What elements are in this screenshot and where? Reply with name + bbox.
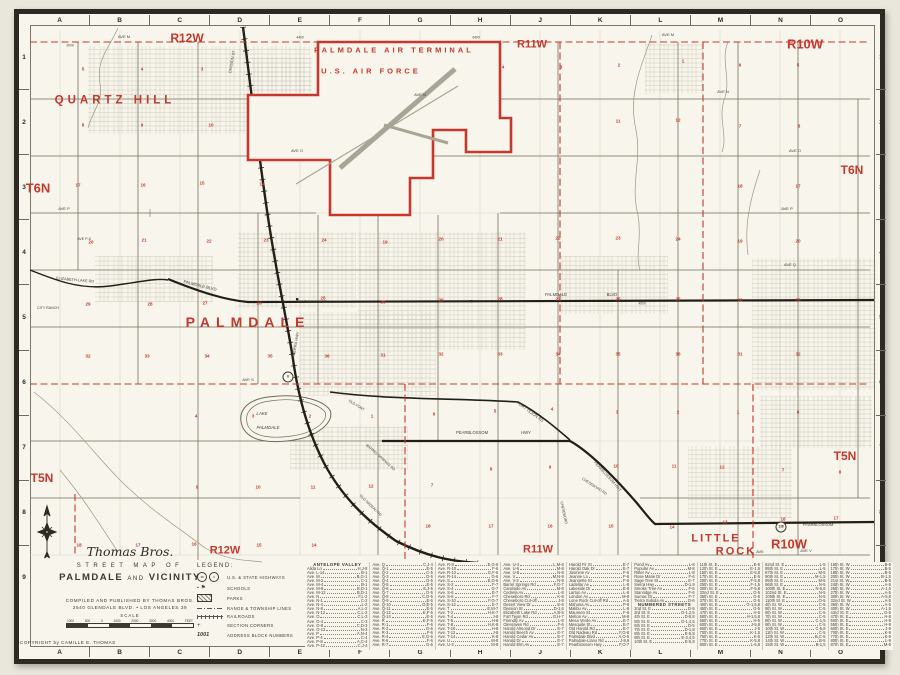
leader-dots [455, 585, 492, 586]
leader-dots [849, 621, 883, 622]
grid-letter: H [450, 15, 510, 25]
school-square-icon: ▪ [197, 586, 199, 591]
grid-ref: M-8 [491, 643, 498, 647]
leader-dots [783, 625, 818, 626]
leader-dots [389, 645, 425, 646]
leader-dots [849, 645, 882, 646]
leader-dots [719, 585, 750, 586]
index-entry: Ave. R-7G-6 [372, 643, 432, 647]
grid-letter: B [89, 15, 149, 25]
leader-dots [851, 609, 881, 610]
index-column: ANTELOPE VALLEYAlida LnH,J-8Ave. L-14B-1… [305, 562, 369, 650]
grid-letter: A [30, 647, 89, 657]
leader-dots [324, 601, 360, 602]
legend-row-township: RANGE & TOWNSHIP LINES [197, 606, 313, 611]
scale-tick: 1000 [113, 619, 120, 623]
leader-dots [785, 633, 818, 634]
leader-dots [589, 577, 622, 578]
leader-dots [324, 581, 360, 582]
leader-dots [587, 609, 622, 610]
grid-number: 7 [876, 415, 886, 480]
leader-dots [454, 613, 487, 614]
leader-dots [719, 621, 753, 622]
leader-dots [454, 617, 492, 618]
grid-letter: F [329, 15, 389, 25]
leader-dots [324, 605, 361, 606]
legend-row-railroads: RAILROADS [197, 614, 313, 619]
leader-dots [596, 569, 622, 570]
leader-dots [454, 621, 491, 622]
leader-dots [327, 593, 356, 594]
leader-dots [537, 629, 557, 630]
leader-dots [537, 585, 553, 586]
title-city: PALMDALE [59, 572, 123, 583]
leader-dots [455, 593, 491, 594]
index-column: Ave. R-8E,G-6Ave. R-10F-6Ave. R-12E,F-6A… [435, 562, 500, 650]
leader-dots [651, 622, 680, 623]
leader-dots [658, 593, 687, 594]
leader-dots [390, 569, 426, 570]
grid-number: 8 [19, 480, 29, 545]
leader-dots [516, 577, 551, 578]
leader-dots [538, 613, 553, 614]
leader-dots [456, 637, 491, 638]
leader-dots [587, 593, 622, 594]
scale-tick: 3000 [149, 619, 156, 623]
leader-dots [605, 641, 620, 642]
leader-dots [719, 617, 746, 618]
leader-dots [451, 609, 487, 610]
grid-ref: E-5,8 [685, 640, 695, 644]
leader-dots [786, 597, 818, 598]
leader-dots [719, 641, 750, 642]
leader-dots [786, 601, 818, 602]
legend-title: LEGEND: [197, 563, 313, 569]
legend-railroads-label: RAILROADS [227, 614, 255, 619]
legend-row-highways: 38 6 U.S. & STATE HIGHWAYS [197, 572, 313, 582]
leader-dots [603, 645, 618, 646]
us-highway-shield-icon: 38 [197, 572, 207, 582]
index-entry: Ave. P-12C,J-4 [307, 644, 367, 648]
leader-dots [390, 589, 423, 590]
leader-dots [719, 625, 750, 626]
grid-number: 3 [876, 154, 886, 219]
grid-ref: B-1,5 [816, 643, 826, 647]
index-entry: Ave. U-2M-8 [438, 643, 498, 647]
park-hatch-icon [197, 594, 212, 602]
leader-dots [390, 585, 426, 586]
leader-dots [520, 573, 556, 574]
leader-dots [849, 633, 883, 634]
grid-letter: N [750, 15, 810, 25]
grid-ref: C,J-4 [358, 644, 368, 648]
leader-dots [849, 637, 883, 638]
grid-ref: F,O-7 [619, 643, 629, 647]
leader-dots [851, 597, 881, 598]
leader-dots [850, 613, 883, 614]
leader-dots [389, 641, 425, 642]
grid-letter: C [149, 647, 209, 657]
leader-dots [851, 589, 881, 590]
leader-dots [663, 589, 688, 590]
leader-dots [538, 601, 557, 602]
leader-dots [392, 613, 422, 614]
leader-dots [451, 641, 490, 642]
title-and: AND [127, 576, 144, 582]
legend-corners-label: SECTION CORNERS [227, 623, 274, 628]
grid-ref: L-5,8 [751, 643, 760, 647]
leader-dots [719, 589, 750, 590]
grid-number: 4 [19, 219, 29, 284]
leader-dots [852, 601, 884, 602]
leader-dots [598, 633, 618, 634]
legend-row-parks: PARKS [197, 594, 313, 602]
index-entry: 80th St. EL-5,8 [700, 643, 760, 647]
legend: LEGEND: 38 6 U.S. & STATE HIGHWAYS ▪ ⚑ S… [197, 563, 313, 642]
leader-dots [784, 585, 818, 586]
leader-dots [320, 597, 357, 598]
leader-dots [851, 605, 884, 606]
grid-ruler-right: 123456789 [876, 25, 886, 610]
leader-dots [784, 573, 817, 574]
leader-dots [720, 593, 752, 594]
grid-letter: M [690, 15, 750, 25]
leader-dots [719, 645, 750, 646]
publisher-address: 2540 GLENDALE BLVD. • LOS ANGELES 39 [38, 605, 222, 610]
leader-dots [389, 637, 421, 638]
leader-dots [324, 622, 360, 623]
leader-dots [455, 597, 492, 598]
leader-dots [662, 577, 688, 578]
leader-dots [651, 634, 684, 635]
leader-dots [719, 609, 753, 610]
scale-feet-label: FEET [185, 619, 193, 623]
index-column: 11th St. EE-512th St. EE-1,515th St. EE-… [697, 562, 762, 650]
index-entry: Pearblossom HwyF,O-7 [569, 643, 629, 647]
leader-dots [455, 565, 487, 566]
street-name: 87th St. E [831, 643, 849, 647]
grid-number: 5 [876, 284, 886, 349]
street-index: ANTELOPE VALLEYAlida LnH,J-8Ave. L-14B-1… [305, 562, 893, 650]
grid-number: 2 [876, 89, 886, 154]
street-name: 15th St. W [765, 643, 784, 647]
leader-dots [451, 581, 487, 582]
leader-dots [324, 589, 356, 590]
leader-dots [323, 569, 357, 570]
leader-dots [849, 617, 883, 618]
grid-ruler-left: 123456789 [19, 25, 29, 610]
map-page: ABCDEFGHJKLMNO ABCDEFGHJKLMNO 123456789 … [0, 0, 900, 675]
scale-tick: 1000 [67, 619, 74, 623]
leader-dots [389, 625, 425, 626]
leader-dots [386, 621, 422, 622]
street-name: Ave. R-7 [372, 643, 388, 647]
leader-dots [457, 605, 491, 606]
legend-row-schools: ▪ ⚑ SCHOOLS [197, 586, 313, 591]
leader-dots [719, 577, 753, 578]
leader-dots [455, 645, 491, 646]
township-line-icon [197, 608, 223, 609]
scale-bar [66, 623, 194, 628]
grid-letter: C [149, 15, 209, 25]
grid-number: 6 [19, 350, 29, 415]
leader-dots [785, 637, 814, 638]
leader-dots [324, 638, 360, 639]
leader-dots [785, 645, 815, 646]
grid-number: 2 [19, 89, 29, 154]
leader-dots [593, 565, 622, 566]
leader-dots [783, 613, 818, 614]
leader-dots [851, 565, 884, 566]
leader-dots [525, 621, 557, 622]
section-corner-icon: + [197, 623, 201, 629]
leader-dots [389, 633, 425, 634]
grid-letter: L [630, 15, 690, 25]
leader-dots [719, 597, 753, 598]
leader-dots [325, 573, 360, 574]
grid-number: 5 [19, 284, 29, 349]
leader-dots [851, 585, 884, 586]
leader-dots [651, 613, 680, 614]
grid-letter: D [209, 647, 269, 657]
compiled-by-line: COMPILED AND PUBLISHED BY THOMAS BROS. [38, 598, 222, 603]
leader-dots [787, 593, 817, 594]
leader-dots [719, 569, 750, 570]
leader-dots [609, 601, 622, 602]
leader-dots [456, 629, 490, 630]
leader-dots [849, 625, 883, 626]
leader-dots [786, 589, 814, 590]
index-column: 16th St. WB-517th St. WB-518th St. WB-52… [828, 562, 893, 650]
grid-number: 7 [19, 415, 29, 480]
grid-number: 1 [876, 25, 886, 89]
leader-dots [659, 581, 687, 582]
legend-highways-label: U.S. & STATE HIGHWAYS [227, 575, 285, 580]
leader-dots [535, 633, 557, 634]
index-column: 82nd St. EL-585th St. EL-587th St. EM-59… [762, 562, 827, 650]
leader-dots [784, 577, 814, 578]
scale-tick: 4000 [167, 619, 174, 623]
leader-dots [326, 646, 357, 647]
leader-dots [851, 577, 881, 578]
leader-dots [590, 605, 622, 606]
leader-dots [389, 629, 425, 630]
leader-dots [390, 593, 426, 594]
leader-dots [457, 569, 491, 570]
leader-dots [851, 573, 884, 574]
leader-dots [324, 585, 360, 586]
grid-ref: G-6 [426, 643, 433, 647]
leader-dots [783, 621, 815, 622]
leader-dots [591, 613, 622, 614]
leader-dots [590, 585, 622, 586]
leader-dots [655, 569, 687, 570]
leader-dots [651, 617, 684, 618]
leader-dots [520, 565, 552, 566]
leader-dots [457, 573, 487, 574]
grid-letter: O [810, 15, 870, 25]
scale-label: SCALE [38, 613, 222, 618]
leader-dots [530, 645, 556, 646]
index-column: Pond AvL-8Popular AvM-8Ritter AvL-8Rose … [631, 562, 696, 650]
leader-dots [785, 641, 818, 642]
leader-dots [392, 605, 422, 606]
leader-dots [650, 565, 687, 566]
leader-dots [597, 621, 622, 622]
leader-dots [651, 638, 681, 639]
title-block: Thomas Bros. STREET MAP OF PALMDALE AND … [38, 544, 222, 628]
grid-number: 9 [19, 545, 29, 610]
leader-dots [326, 613, 356, 614]
grid-number: 4 [876, 219, 886, 284]
leader-dots [651, 626, 687, 627]
index-entry: 10th St. EE-5,8 [634, 640, 694, 644]
scale-tick: 0 [101, 619, 103, 623]
leader-dots [850, 581, 883, 582]
leader-dots [591, 625, 621, 626]
leader-dots [651, 630, 684, 631]
leader-dots [390, 597, 422, 598]
grid-letter: K [570, 15, 630, 25]
leader-dots [719, 573, 750, 574]
leader-dots [326, 630, 359, 631]
scale-tick: 2000 [131, 619, 138, 623]
street-name: Pearblossom Hwy [569, 643, 602, 647]
grid-number: 3 [19, 154, 29, 219]
leader-dots [392, 609, 426, 610]
leader-dots [719, 633, 750, 634]
grid-letter: G [389, 15, 449, 25]
leader-dots [849, 629, 884, 630]
leader-dots [785, 629, 814, 630]
grid-ref: E-7 [557, 643, 563, 647]
grid-ref: M-9 [884, 643, 891, 647]
grid-letter: B [89, 647, 149, 657]
railroad-line-icon [197, 615, 223, 619]
index-column: Harold Fir StE-7Harold Oak DrE-7Jasmine … [566, 562, 631, 650]
leader-dots [321, 577, 356, 578]
map-subtitle: STREET MAP OF [38, 563, 222, 569]
leader-dots [783, 617, 818, 618]
leader-dots [529, 617, 552, 618]
copyright-line: COPYRIGHT by CAMILLE E. THOMAS [20, 640, 220, 645]
leader-dots [591, 573, 622, 574]
leader-dots [390, 577, 426, 578]
leader-dots [784, 581, 817, 582]
street-name: Ave. U-2 [438, 643, 454, 647]
leader-dots [392, 617, 426, 618]
leader-dots [851, 593, 884, 594]
street-name: Harold Elm Av [503, 643, 529, 647]
index-entry: 87th St. EM-9 [831, 643, 891, 647]
grid-number: 1 [19, 25, 29, 89]
leader-dots [534, 637, 556, 638]
leader-dots [719, 629, 754, 630]
leader-dots [783, 605, 818, 606]
street-name: 10th St. E [634, 640, 652, 644]
leader-dots [455, 589, 491, 590]
legend-row-corners: + SECTION CORNERS [197, 623, 313, 629]
legend-row-address: 1001 ADDRESS BLOCK NUMBERS [197, 632, 313, 638]
leader-dots [784, 569, 819, 570]
index-entry: 15th St. WB-1,5 [765, 643, 825, 647]
leader-dots [390, 601, 426, 602]
leader-dots [386, 565, 422, 566]
grid-number: 8 [876, 480, 886, 545]
grid-letter: D [209, 15, 269, 25]
leader-dots [324, 626, 356, 627]
leader-dots [324, 609, 357, 610]
leader-dots [785, 565, 818, 566]
legend-address-label: ADDRESS BLOCK NUMBERS [227, 633, 293, 638]
leader-dots [390, 581, 426, 582]
leader-dots [718, 565, 752, 566]
legend-parks-label: PARKS [227, 596, 243, 601]
grid-ruler-top: ABCDEFGHJKLMNO [30, 15, 870, 25]
leader-dots [596, 629, 622, 630]
index-column: Ave. QC,J-4Ave. Q-1E-5Ave. Q-2C-5Ave. Q-… [369, 562, 434, 650]
title-vicinity: VICINITY [149, 572, 201, 583]
publisher-script-name: Thomas Bros. [38, 544, 222, 559]
leader-dots [456, 633, 491, 634]
leader-dots [457, 577, 490, 578]
leader-dots [592, 589, 622, 590]
leader-dots [520, 569, 556, 570]
leader-dots [390, 573, 426, 574]
map-title: PALMDALE AND VICINITY [38, 572, 222, 583]
leader-dots [653, 642, 684, 643]
grid-letter: E [269, 15, 329, 25]
leader-dots [457, 601, 488, 602]
school-flag-icon: ⚑ [201, 586, 206, 591]
grid-letter: J [510, 15, 570, 25]
leader-dots [454, 625, 487, 626]
index-column: Ave. U-4L,M-8Ave. U-6M-8Ave. U-8N-8Ave. … [500, 562, 565, 650]
leader-dots [527, 589, 555, 590]
legend-schools-label: SCHOOLS [227, 586, 250, 591]
legend-township-label: RANGE & TOWNSHIP LINES [227, 606, 291, 611]
leader-dots [532, 605, 557, 606]
index-entry: Harold Elm AvE-7 [503, 643, 563, 647]
scale-tick: 500 [85, 619, 90, 623]
leader-dots [851, 569, 884, 570]
address-block-sample: 1001 [197, 632, 209, 638]
leader-dots [783, 609, 818, 610]
leader-dots [719, 581, 750, 582]
leader-dots [719, 637, 753, 638]
street-name: 80th St. E [700, 643, 718, 647]
grid-number: 6 [876, 350, 886, 415]
street-name: Ave. P-12 [307, 644, 325, 648]
leader-dots [719, 605, 746, 606]
state-highway-shield-icon: 6 [209, 572, 219, 582]
leader-dots [320, 634, 356, 635]
leader-dots [320, 617, 356, 618]
grid-letter: A [30, 15, 89, 25]
leader-dots [324, 642, 356, 643]
leader-dots [849, 641, 884, 642]
leader-dots [593, 581, 622, 582]
